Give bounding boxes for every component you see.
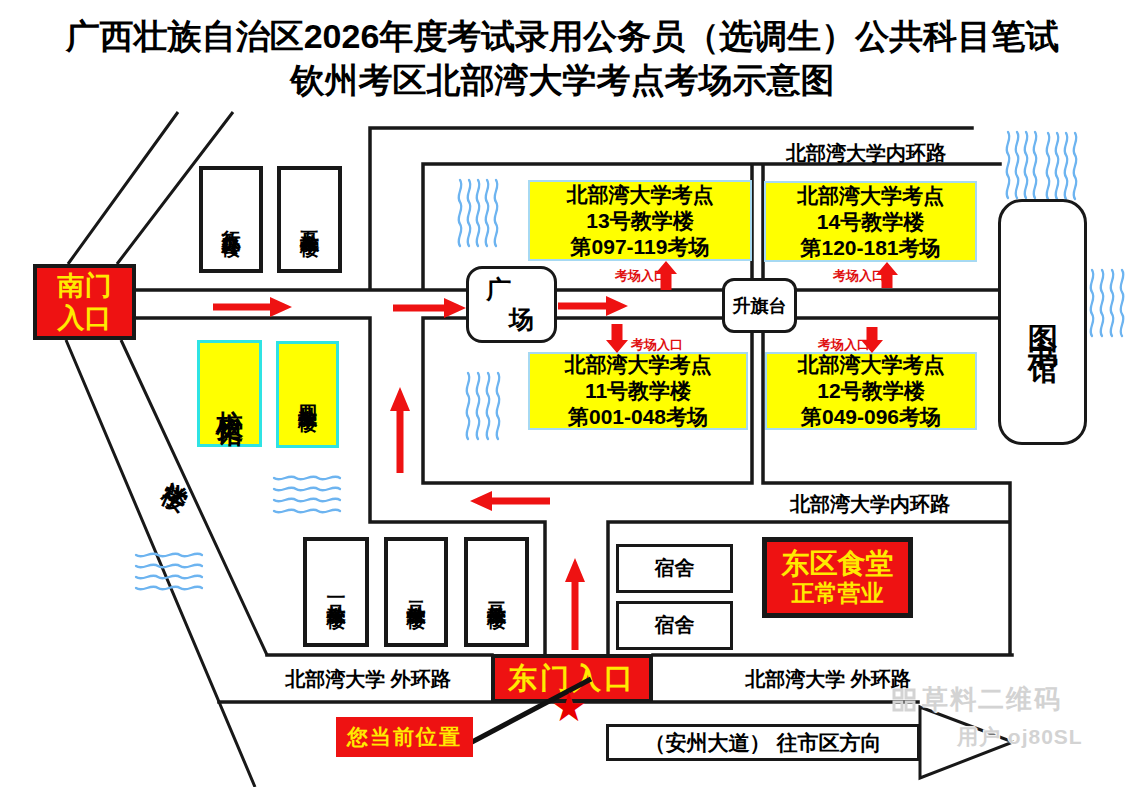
route-arrow-left-bottom bbox=[470, 491, 550, 511]
exam-site-map: 广西壮族自治区2026年度考试录用公务员（选调生）公共科目笔试 钦州考区北部湾大… bbox=[0, 0, 1125, 787]
route-arrow-right-2 bbox=[393, 298, 466, 318]
route-arrow-right-1 bbox=[213, 297, 292, 317]
watermark-brand-row: 草料二维码 bbox=[892, 682, 1062, 717]
current-location-star: ★ bbox=[551, 687, 587, 727]
entrance-arrow-up-14 bbox=[876, 262, 898, 288]
entrance-arrow-down-12 bbox=[861, 327, 883, 353]
route-arrow-right-3 bbox=[558, 296, 628, 316]
watermark-user: 用户 oj80SL bbox=[957, 723, 1083, 751]
route-arrow-up-east-gate bbox=[565, 558, 585, 650]
entrance-arrow-down-11 bbox=[606, 324, 628, 353]
entrance-arrow-up-13 bbox=[655, 261, 677, 290]
route-arrows-layer bbox=[0, 0, 1125, 787]
route-arrow-up-west bbox=[390, 387, 410, 473]
current-location-badge: 您当前位置 bbox=[336, 717, 473, 757]
watermark-brand: 草料二维码 bbox=[922, 682, 1062, 717]
qr-icon bbox=[892, 688, 916, 712]
